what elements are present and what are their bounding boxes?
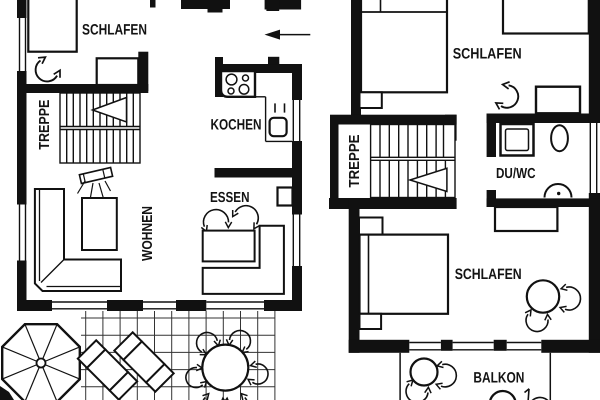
- svg-text:WOHNEN: WOHNEN: [139, 206, 156, 261]
- svg-text:KOCHEN: KOCHEN: [210, 117, 261, 134]
- svg-text:TREPPE: TREPPE: [346, 135, 363, 188]
- svg-text:DU/WC: DU/WC: [496, 166, 536, 182]
- svg-text:SCHLAFEN: SCHLAFEN: [455, 266, 522, 283]
- svg-text:BALKON: BALKON: [473, 370, 524, 387]
- svg-text:SCHLAFEN: SCHLAFEN: [453, 46, 522, 63]
- svg-text:SCHLAFEN: SCHLAFEN: [82, 22, 147, 39]
- svg-text:TREPPE: TREPPE: [36, 100, 53, 150]
- svg-text:ESSEN: ESSEN: [210, 190, 250, 206]
